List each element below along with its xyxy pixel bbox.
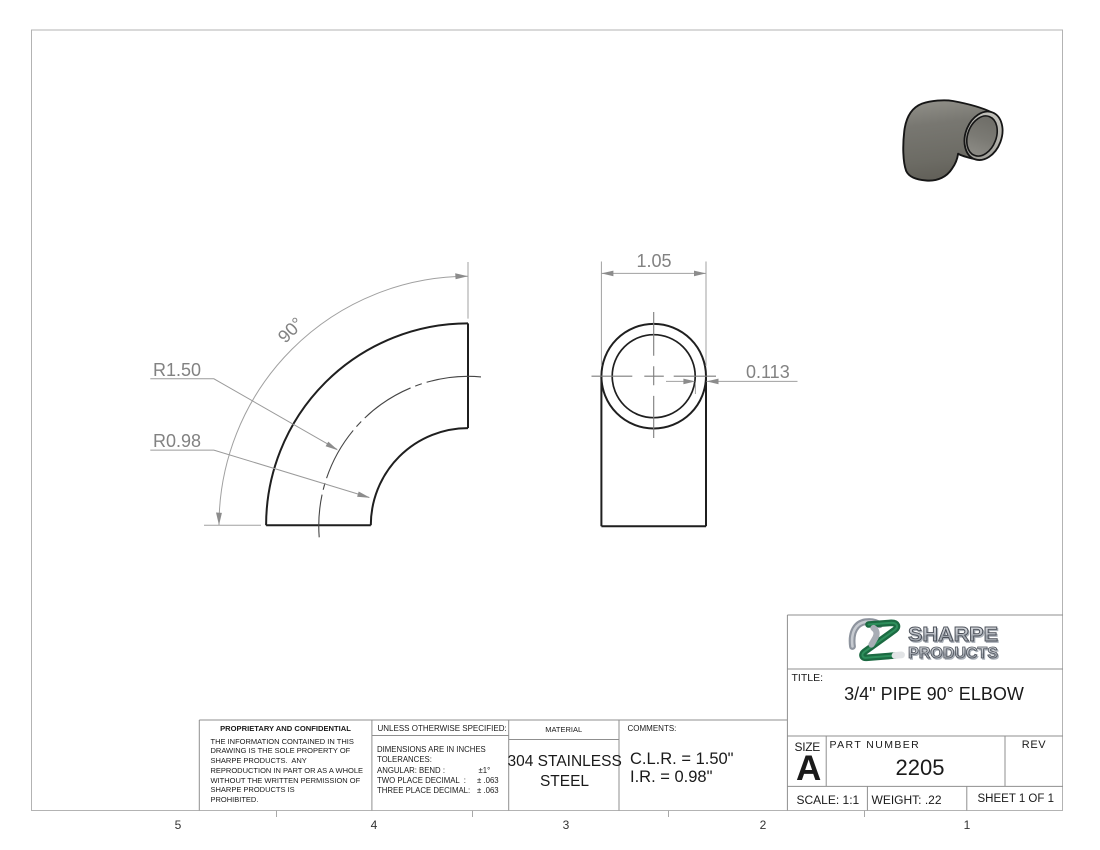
svg-text:SHARPE: SHARPE: [908, 624, 998, 646]
svg-text:PRODUCTS: PRODUCTS: [908, 645, 998, 662]
